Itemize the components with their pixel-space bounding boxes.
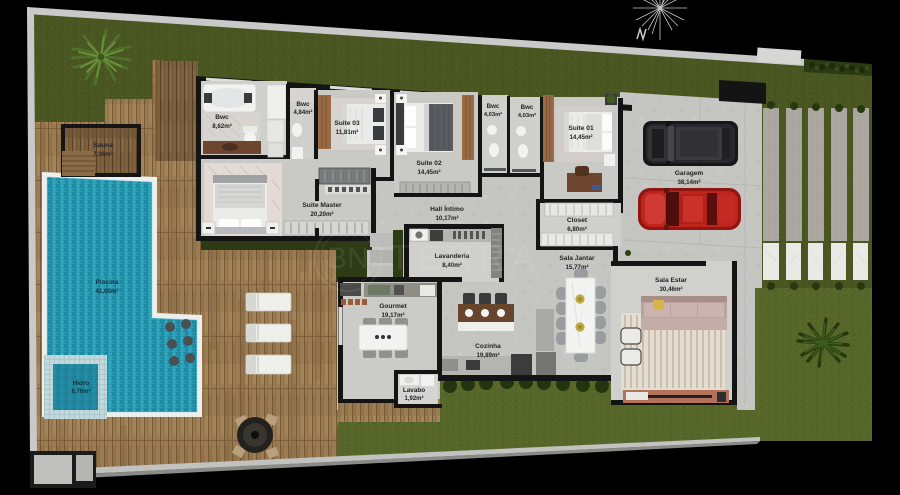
svg-text:6,80m²: 6,80m² bbox=[567, 226, 587, 233]
svg-text:Bwc: Bwc bbox=[215, 114, 229, 121]
svg-text:10,17m²: 10,17m² bbox=[435, 215, 458, 222]
svg-text:Cozinha: Cozinha bbox=[475, 343, 501, 350]
svg-text:Hidro: Hidro bbox=[73, 380, 90, 387]
svg-text:19,17m²: 19,17m² bbox=[381, 312, 404, 319]
svg-text:BN: BN bbox=[327, 242, 369, 275]
svg-text:Bwc: Bwc bbox=[521, 104, 534, 111]
svg-text:Suite Master: Suite Master bbox=[302, 202, 342, 209]
svg-text:41,00m²: 41,00m² bbox=[95, 288, 118, 295]
svg-text:38,14m²: 38,14m² bbox=[677, 179, 700, 186]
svg-text:4,03m²: 4,03m² bbox=[484, 111, 502, 118]
svg-text:4,84m²: 4,84m² bbox=[293, 109, 312, 116]
svg-text:4,03m²: 4,03m² bbox=[518, 112, 536, 119]
svg-text:6,76m²: 6,76m² bbox=[71, 388, 90, 395]
svg-text:Sala Estar: Sala Estar bbox=[655, 277, 687, 284]
svg-text:1,92m²: 1,92m² bbox=[404, 395, 423, 402]
svg-text:Garagem: Garagem bbox=[675, 170, 704, 177]
svg-text:TERRA: TERRA bbox=[389, 237, 541, 278]
svg-text:Bwc: Bwc bbox=[487, 103, 500, 110]
svg-text:Sala Jantar: Sala Jantar bbox=[559, 255, 595, 262]
svg-text:8,62m²: 8,62m² bbox=[212, 123, 232, 130]
svg-text:Sauna: Sauna bbox=[93, 142, 113, 149]
svg-text:Lavabo: Lavabo bbox=[403, 387, 425, 394]
svg-text:Suite 02: Suite 02 bbox=[416, 160, 442, 167]
svg-text:14,45m²: 14,45m² bbox=[417, 169, 440, 176]
svg-text:Closet: Closet bbox=[567, 217, 588, 224]
svg-text:Suite 03: Suite 03 bbox=[334, 120, 360, 127]
svg-text:Bwc: Bwc bbox=[296, 101, 310, 108]
svg-text:Suite 01: Suite 01 bbox=[568, 125, 594, 132]
svg-text:Gourmet: Gourmet bbox=[379, 303, 407, 310]
svg-text:20,20m²: 20,20m² bbox=[310, 211, 333, 218]
svg-text:7,36m²: 7,36m² bbox=[93, 151, 113, 158]
svg-text:14,45m²: 14,45m² bbox=[569, 134, 592, 141]
svg-text:Piscina: Piscina bbox=[95, 279, 118, 286]
svg-text:19,89m²: 19,89m² bbox=[476, 352, 499, 359]
svg-text:30,46m²: 30,46m² bbox=[659, 286, 682, 293]
svg-text:15,77m²: 15,77m² bbox=[565, 264, 588, 271]
svg-text:11,81m²: 11,81m² bbox=[336, 129, 359, 136]
svg-text:Hall Íntimo: Hall Íntimo bbox=[430, 204, 464, 213]
